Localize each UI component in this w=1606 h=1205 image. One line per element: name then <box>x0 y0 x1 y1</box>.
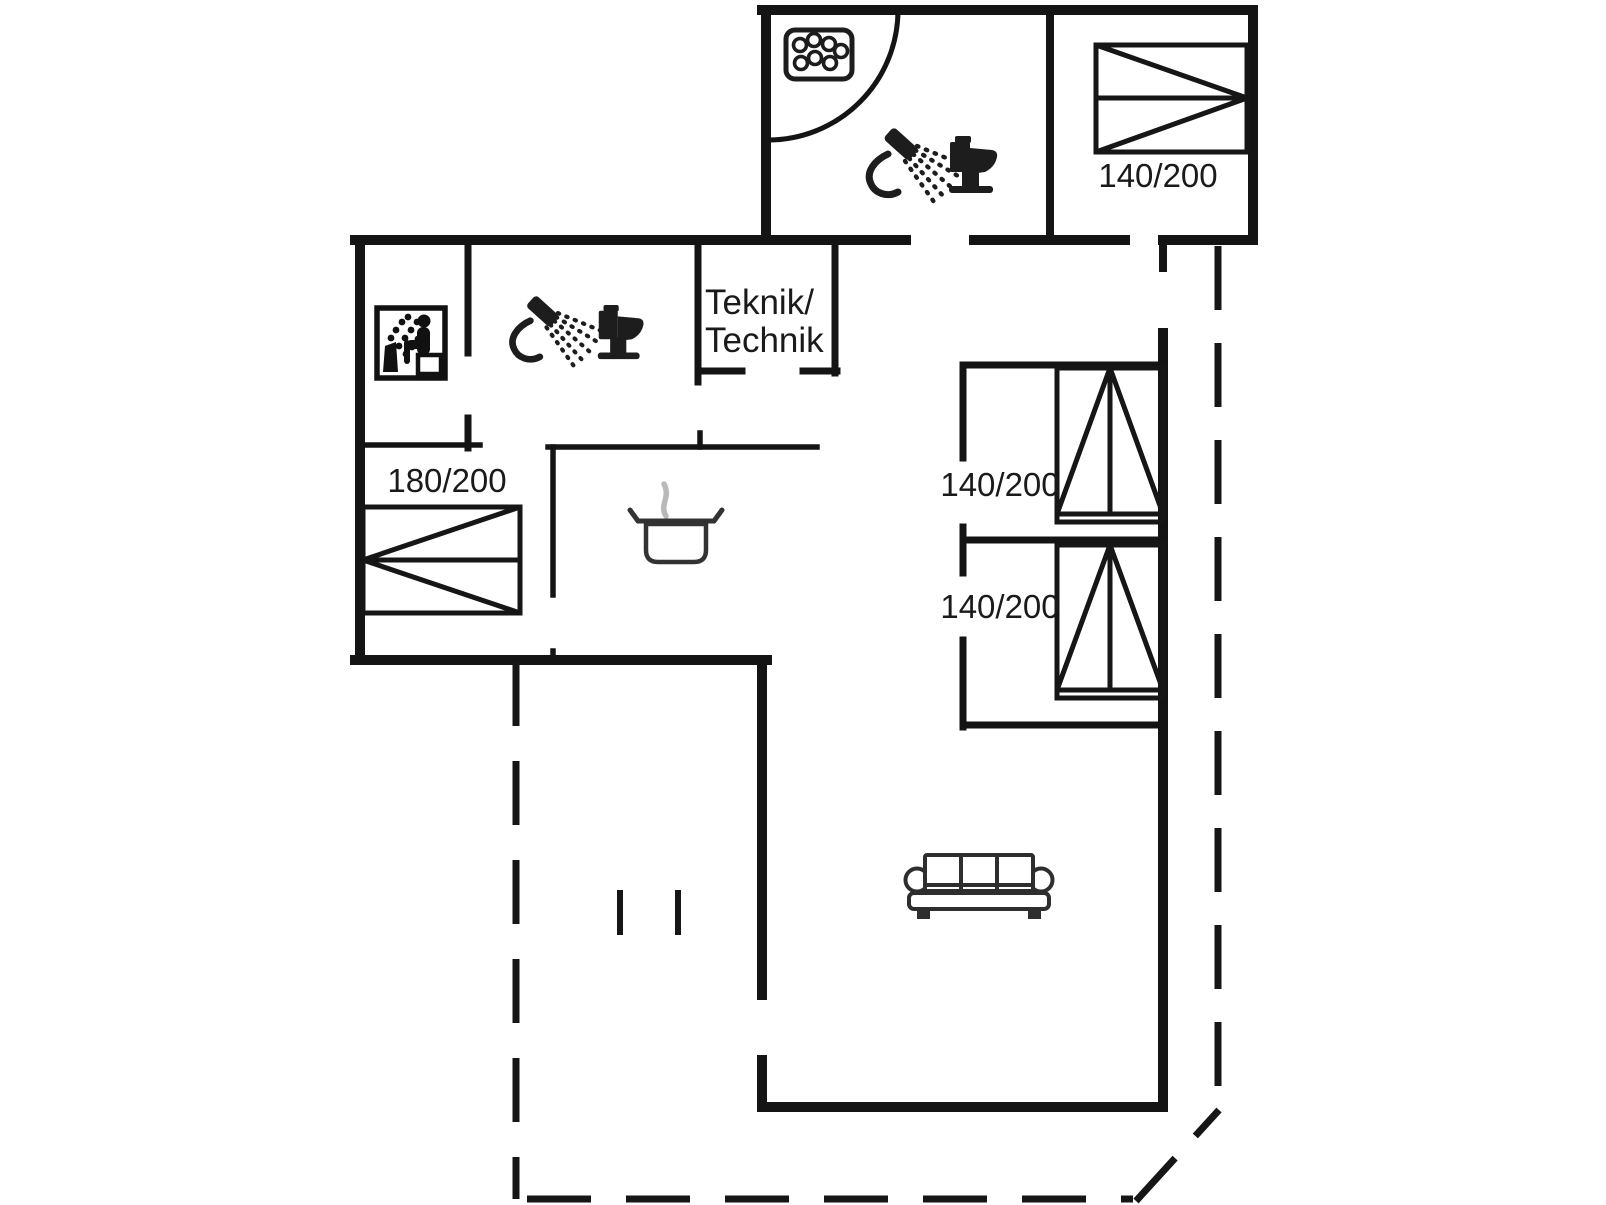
bed-line <box>1110 545 1163 690</box>
bed-line <box>1057 545 1110 690</box>
bed-line <box>1096 98 1247 152</box>
sauna-icon <box>377 308 445 378</box>
floor-plan-drawing: 140/200 180/200 140/200 140/200 Teknik/ … <box>0 0 1606 1205</box>
bed-size-label: 140/200 <box>940 466 1059 503</box>
bed-size-label: 140/200 <box>1098 157 1217 194</box>
bed-right-upper <box>1057 368 1163 522</box>
toilet-icon <box>949 136 997 193</box>
bed-left <box>363 507 520 613</box>
bed-top-right <box>1096 45 1247 152</box>
shower-icon <box>513 295 600 367</box>
bed-line <box>1110 368 1163 514</box>
bed-size-label: 140/200 <box>940 588 1059 625</box>
bed-right-lower <box>1057 545 1163 698</box>
whirlpool-icon <box>786 30 852 79</box>
toilet-icon <box>598 305 644 359</box>
bed-line <box>363 560 520 613</box>
bed-size-label: 180/200 <box>387 462 506 499</box>
sofa-icon <box>906 855 1053 917</box>
bed-line <box>1057 368 1110 514</box>
technical-room-label-line1: Teknik/ <box>705 283 814 322</box>
bed-line <box>1096 45 1247 98</box>
shower-icon <box>869 127 961 202</box>
terrace-dashed-diagonal <box>1136 1110 1219 1201</box>
bed-line <box>363 507 520 560</box>
technical-room-label-line2: Technik <box>705 321 824 360</box>
floor-plan: 140/200 180/200 140/200 140/200 Teknik/ … <box>0 0 1606 1205</box>
steam-wisp <box>664 484 667 516</box>
cooking-pot-icon <box>630 484 722 562</box>
